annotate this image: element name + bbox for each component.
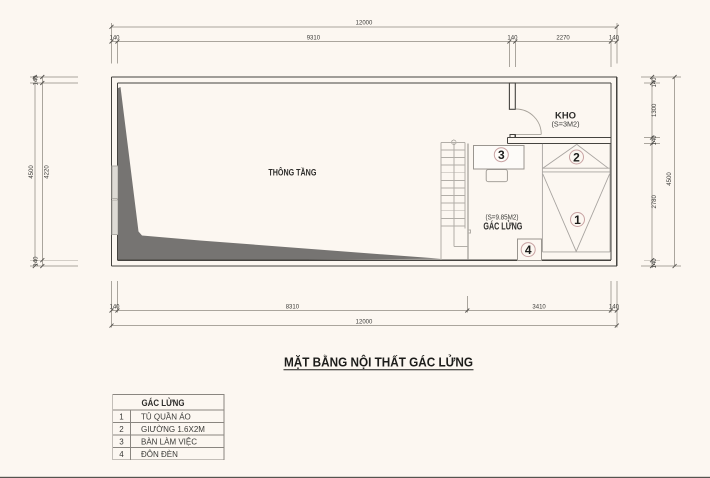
svg-text:4220: 4220 [45,165,51,179]
svg-text:140: 140 [109,304,120,310]
svg-text:140: 140 [609,35,620,41]
svg-text:ĐÔN ĐÈN: ĐÔN ĐÈN [141,450,178,459]
svg-text:1: 1 [119,412,124,421]
svg-text:9310: 9310 [307,35,321,41]
svg-text:4: 4 [525,243,532,257]
svg-text:12000: 12000 [356,21,373,27]
svg-text:4: 4 [119,450,124,459]
svg-text:4500: 4500 [667,172,673,186]
svg-text:THÔNG TẦNG: THÔNG TẦNG [268,166,316,178]
svg-text:12000: 12000 [356,319,373,325]
svg-text:(S=3M2): (S=3M2) [552,119,580,128]
svg-text:3: 3 [119,437,124,446]
svg-text:140: 140 [652,135,658,146]
svg-text:GÁC LỬNG: GÁC LỬNG [142,397,185,408]
svg-text:1: 1 [574,213,581,227]
svg-text:140: 140 [34,256,40,267]
svg-text:140: 140 [609,304,620,310]
svg-text:3410: 3410 [532,304,546,310]
svg-text:140: 140 [652,258,658,269]
svg-text:8310: 8310 [286,304,300,310]
svg-text:GÁC LỬNG: GÁC LỬNG [483,220,522,232]
svg-text:TỦ QUẦN ÁO: TỦ QUẦN ÁO [141,411,191,421]
svg-text:140: 140 [652,77,658,88]
svg-text:GIƯỜNG 1.6X2M: GIƯỜNG 1.6X2M [141,425,205,434]
svg-text:1300: 1300 [652,103,658,117]
svg-text:140: 140 [109,35,120,41]
svg-text:2: 2 [573,150,580,164]
svg-text:3: 3 [498,148,505,162]
svg-text:140: 140 [507,35,518,41]
svg-text:4500: 4500 [29,165,35,179]
svg-text:2: 2 [119,425,124,434]
svg-text:2780: 2780 [652,194,658,208]
svg-text:BÀN LÀM VIỆC: BÀN LÀM VIỆC [141,437,197,446]
svg-text:140: 140 [34,75,40,86]
svg-text:MẶT BẰNG NỘI THẤT GÁC LỬNG: MẶT BẰNG NỘI THẤT GÁC LỬNG [284,355,473,370]
svg-text:2270: 2270 [556,35,570,41]
svg-text:(S=9.85M2): (S=9.85M2) [486,213,519,222]
